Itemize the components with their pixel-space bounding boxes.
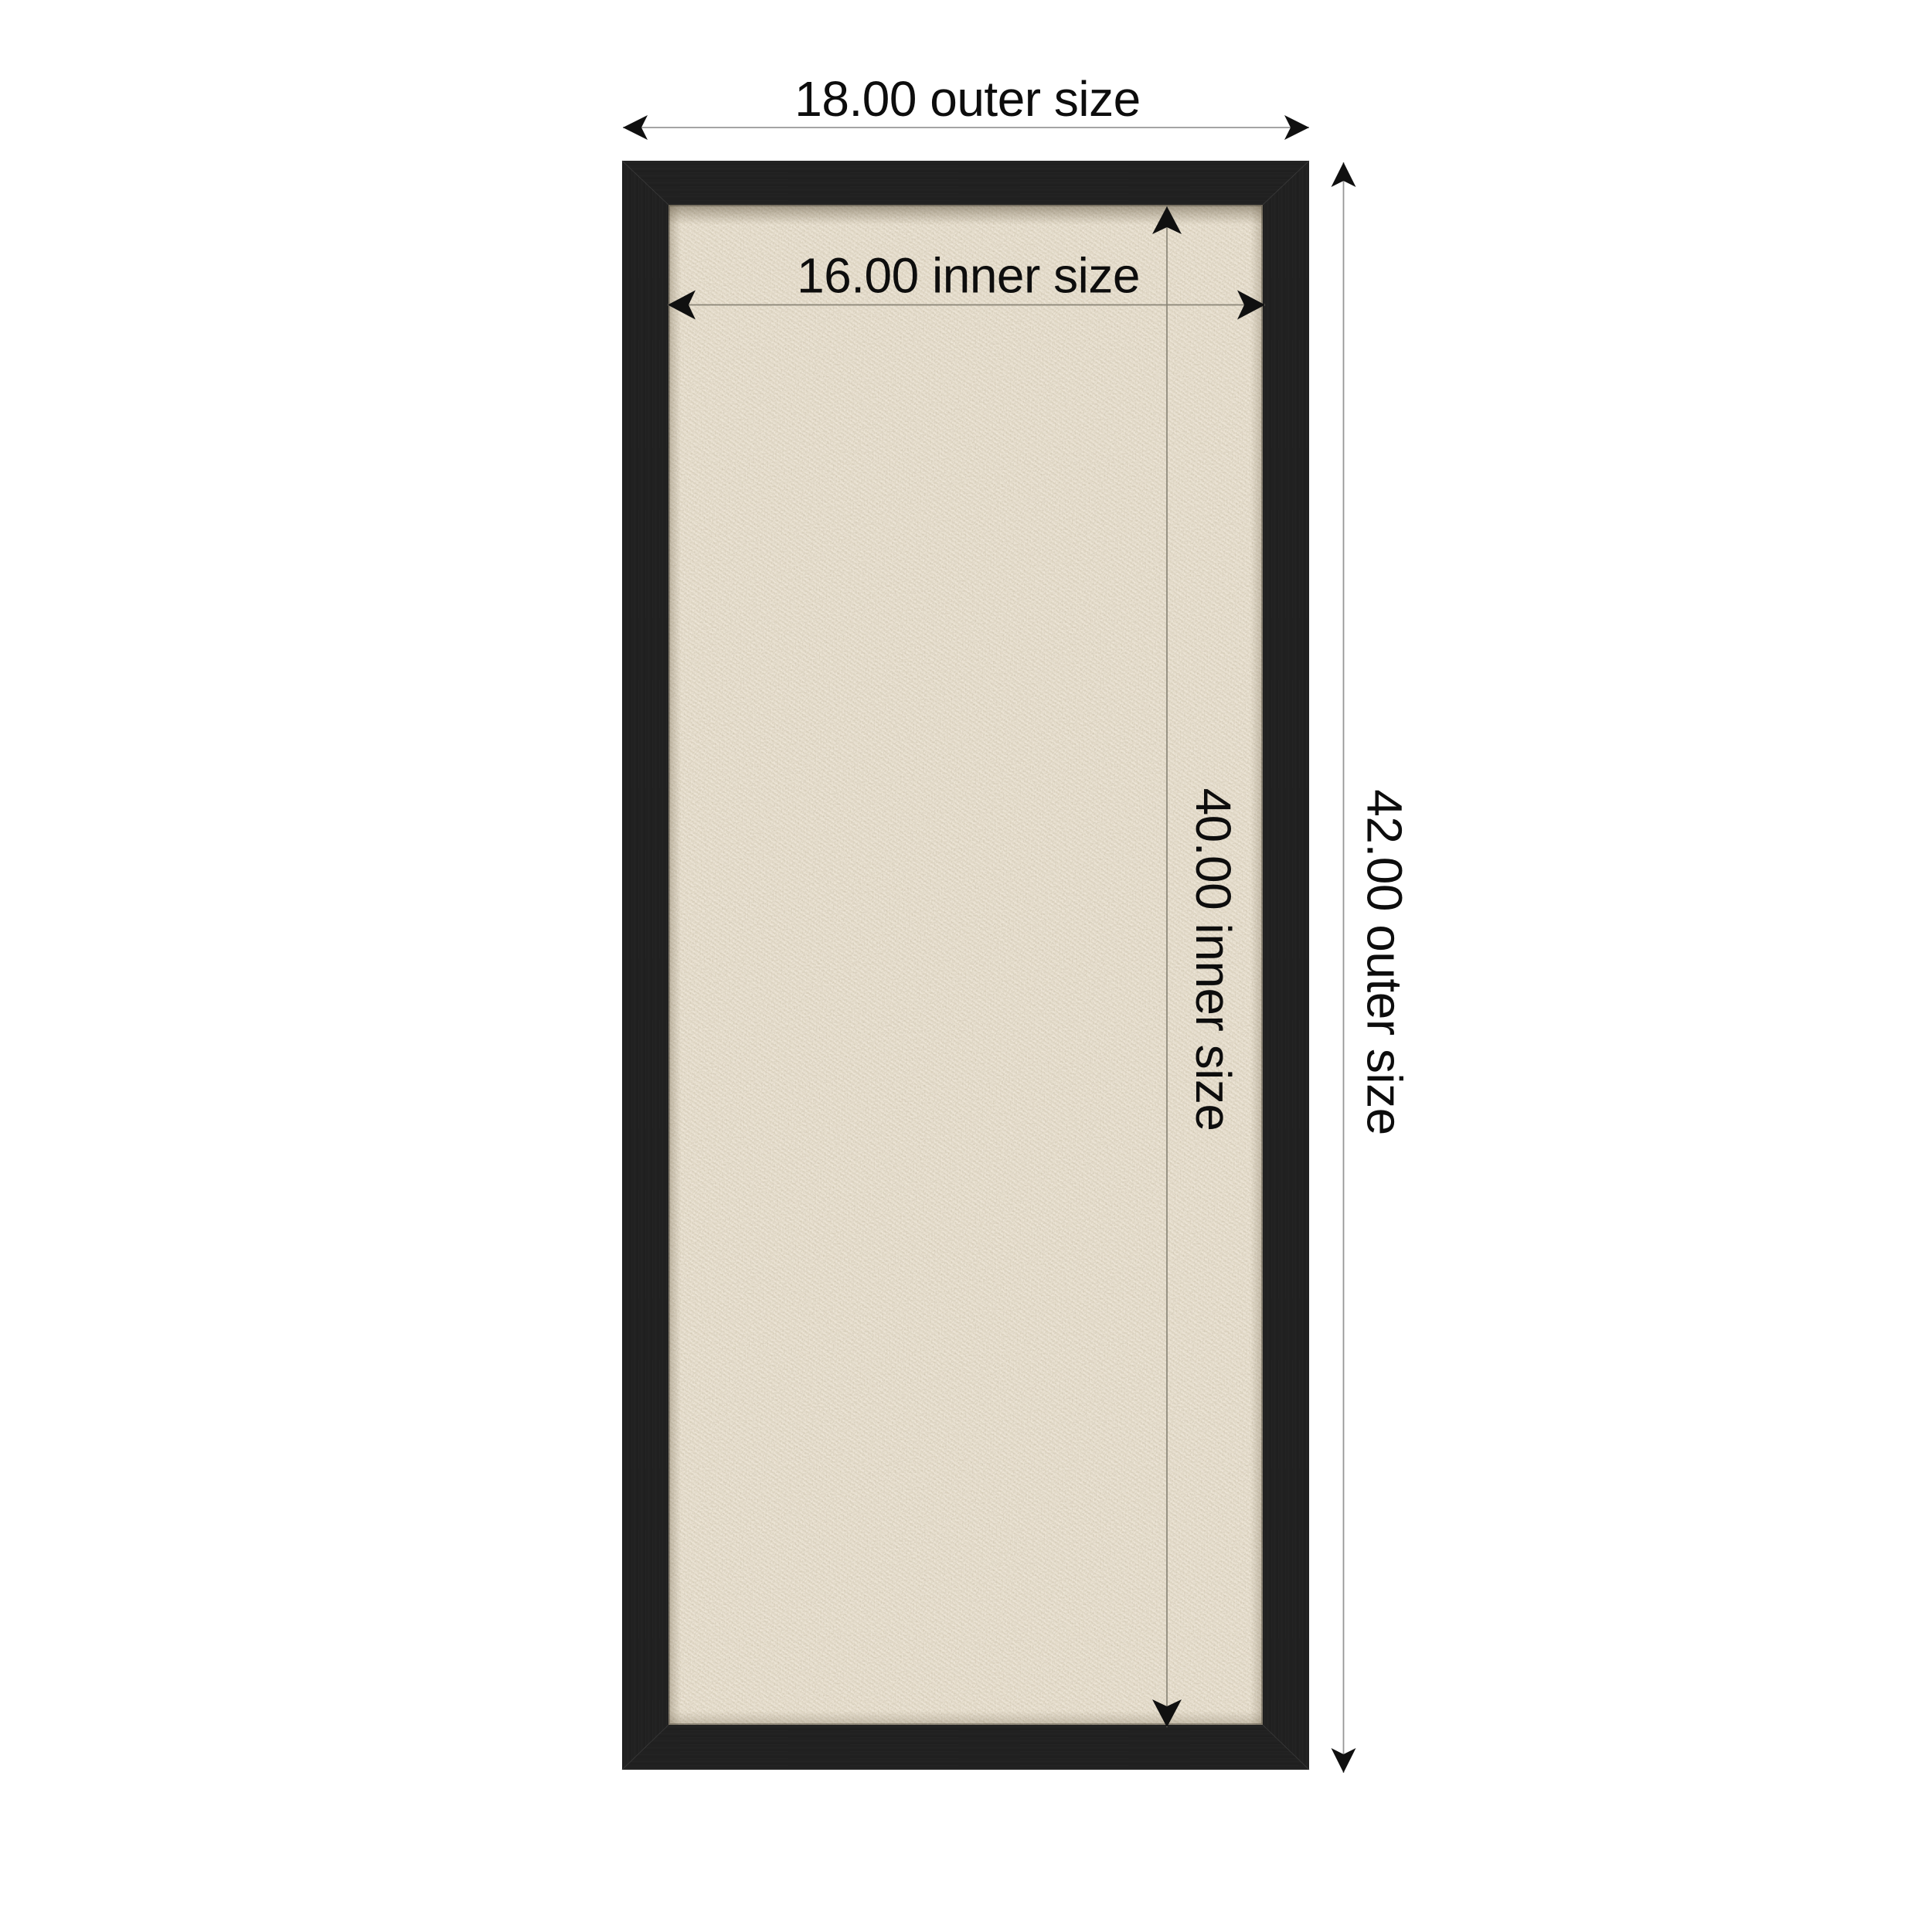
- svg-text:42.00 outer size: 42.00 outer size: [1357, 789, 1413, 1134]
- svg-text:40.00 inner size: 40.00 inner size: [1185, 788, 1241, 1131]
- svg-text:18.00 outer size: 18.00 outer size: [794, 71, 1140, 127]
- svg-text:16.00 inner size: 16.00 inner size: [797, 248, 1140, 304]
